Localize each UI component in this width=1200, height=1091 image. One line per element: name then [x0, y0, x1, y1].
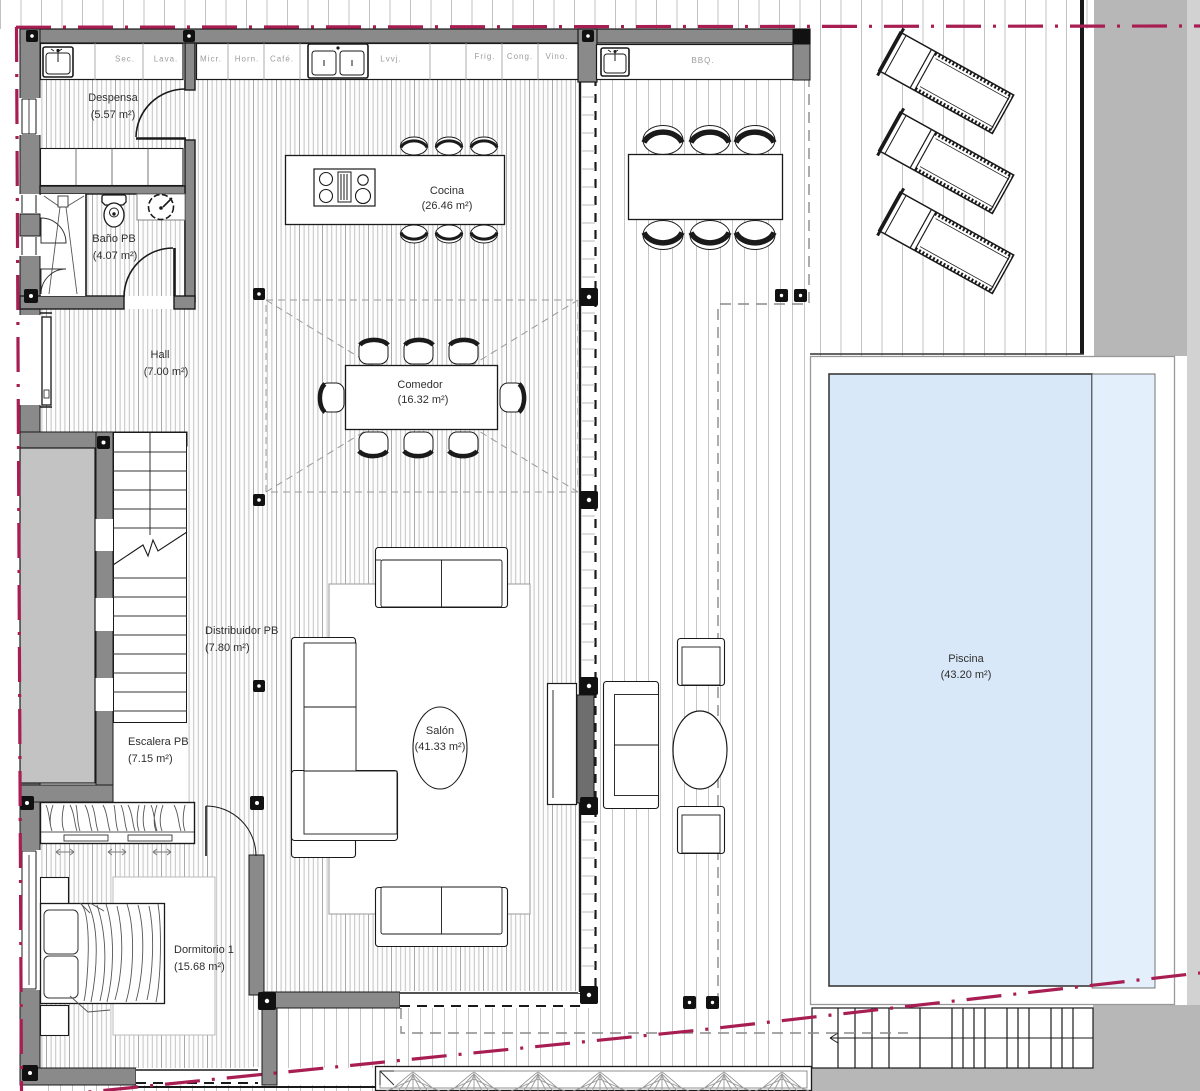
svg-text:Lvvj.: Lvvj.: [380, 55, 401, 64]
svg-text:(7.00 m²): (7.00 m²): [144, 366, 189, 378]
svg-text:Vino.: Vino.: [545, 52, 568, 61]
svg-text:Dormitorio 1: Dormitorio 1: [174, 944, 234, 956]
svg-text:Distribuidor PB: Distribuidor PB: [205, 625, 278, 637]
svg-text:Cocina: Cocina: [430, 185, 465, 197]
svg-text:(4.07 m²): (4.07 m²): [93, 250, 138, 262]
svg-text:Lava.: Lava.: [154, 55, 179, 64]
svg-text:Comedor: Comedor: [397, 379, 443, 391]
svg-text:(16.32 m²): (16.32 m²): [398, 394, 449, 406]
svg-text:(5.57 m²): (5.57 m²): [91, 109, 136, 121]
svg-text:(7.15 m²): (7.15 m²): [128, 753, 173, 765]
svg-text:Cong.: Cong.: [507, 52, 533, 61]
svg-text:Frig.: Frig.: [475, 52, 496, 61]
svg-text:Horn.: Horn.: [235, 55, 260, 64]
svg-text:(43.20 m²): (43.20 m²): [941, 669, 992, 681]
svg-text:Hall: Hall: [151, 349, 170, 361]
svg-text:Micr.: Micr.: [200, 55, 222, 64]
svg-text:(7.80 m²): (7.80 m²): [205, 642, 250, 654]
svg-text:Escalera PB: Escalera PB: [128, 736, 189, 748]
svg-text:Baño PB: Baño PB: [92, 233, 135, 245]
svg-text:Despensa: Despensa: [88, 92, 138, 104]
svg-text:BBQ.: BBQ.: [691, 56, 714, 65]
svg-text:(15.68 m²): (15.68 m²): [174, 961, 225, 973]
svg-text:Café.: Café.: [270, 55, 294, 64]
svg-text:Sec.: Sec.: [115, 55, 135, 64]
svg-text:(41.33 m²): (41.33 m²): [415, 741, 466, 753]
svg-text:Salón: Salón: [426, 725, 454, 737]
svg-text:Piscina: Piscina: [948, 653, 984, 665]
svg-text:(26.46 m²): (26.46 m²): [422, 200, 473, 212]
